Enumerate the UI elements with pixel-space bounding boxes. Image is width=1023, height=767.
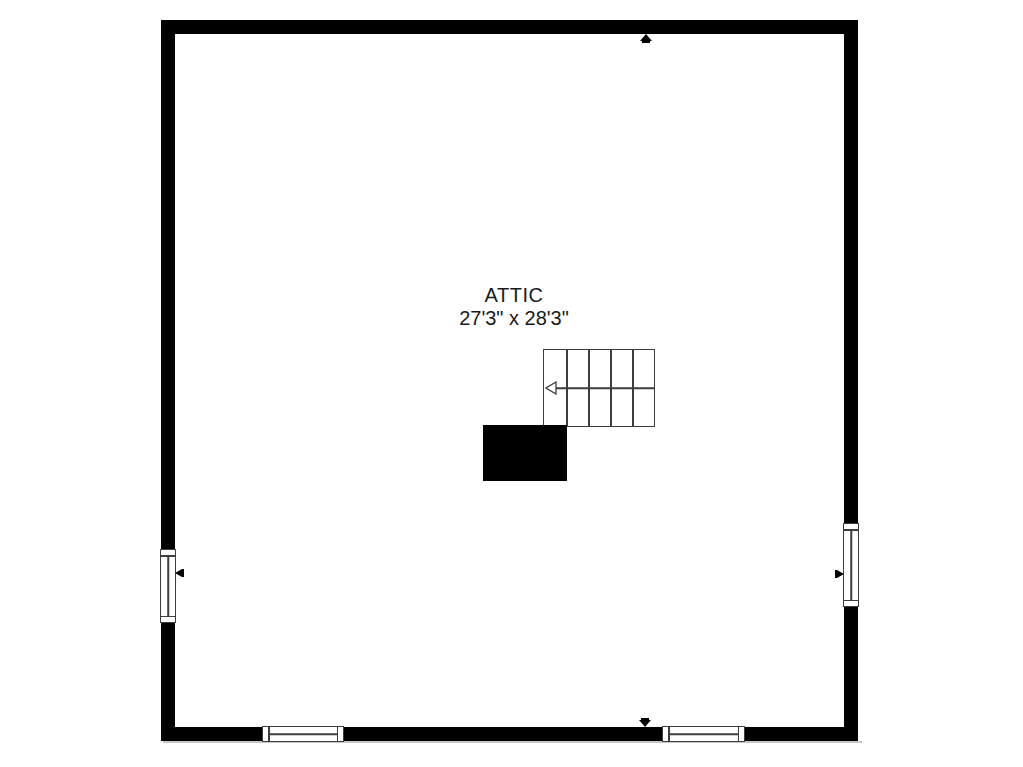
room-walls <box>161 20 858 741</box>
window-bottom-left-wall <box>262 726 344 742</box>
window-glass-line <box>850 530 852 600</box>
direction-marker-left-icon <box>175 569 184 577</box>
direction-marker-right-icon <box>835 570 844 578</box>
window-left-wall <box>160 549 176 623</box>
window-glass-line <box>669 733 738 735</box>
marker-triangle <box>640 34 652 41</box>
room-name-label: ATTIC <box>389 284 639 307</box>
marker-triangle <box>837 570 844 578</box>
direction-marker-bottom-icon <box>639 718 651 727</box>
window-glass-line <box>269 733 337 735</box>
room-dimensions-label: 27'3" x 28'3" <box>389 307 639 330</box>
marker-triangle <box>175 569 182 577</box>
marker-triangle <box>639 720 651 727</box>
staircase <box>543 349 655 427</box>
direction-marker-top-icon <box>640 34 652 43</box>
window-glass-line <box>167 556 169 616</box>
stair-direction-arrow-icon <box>545 381 557 395</box>
window-bottom-right-wall <box>662 726 745 742</box>
marker-bar <box>182 569 184 577</box>
marker-bar <box>642 41 650 43</box>
window-right-wall <box>843 523 859 607</box>
stair-run-line <box>554 387 654 389</box>
stairwell-void <box>483 425 567 481</box>
floor-plan-canvas: ATTIC 27'3" x 28'3" <box>0 0 1023 767</box>
